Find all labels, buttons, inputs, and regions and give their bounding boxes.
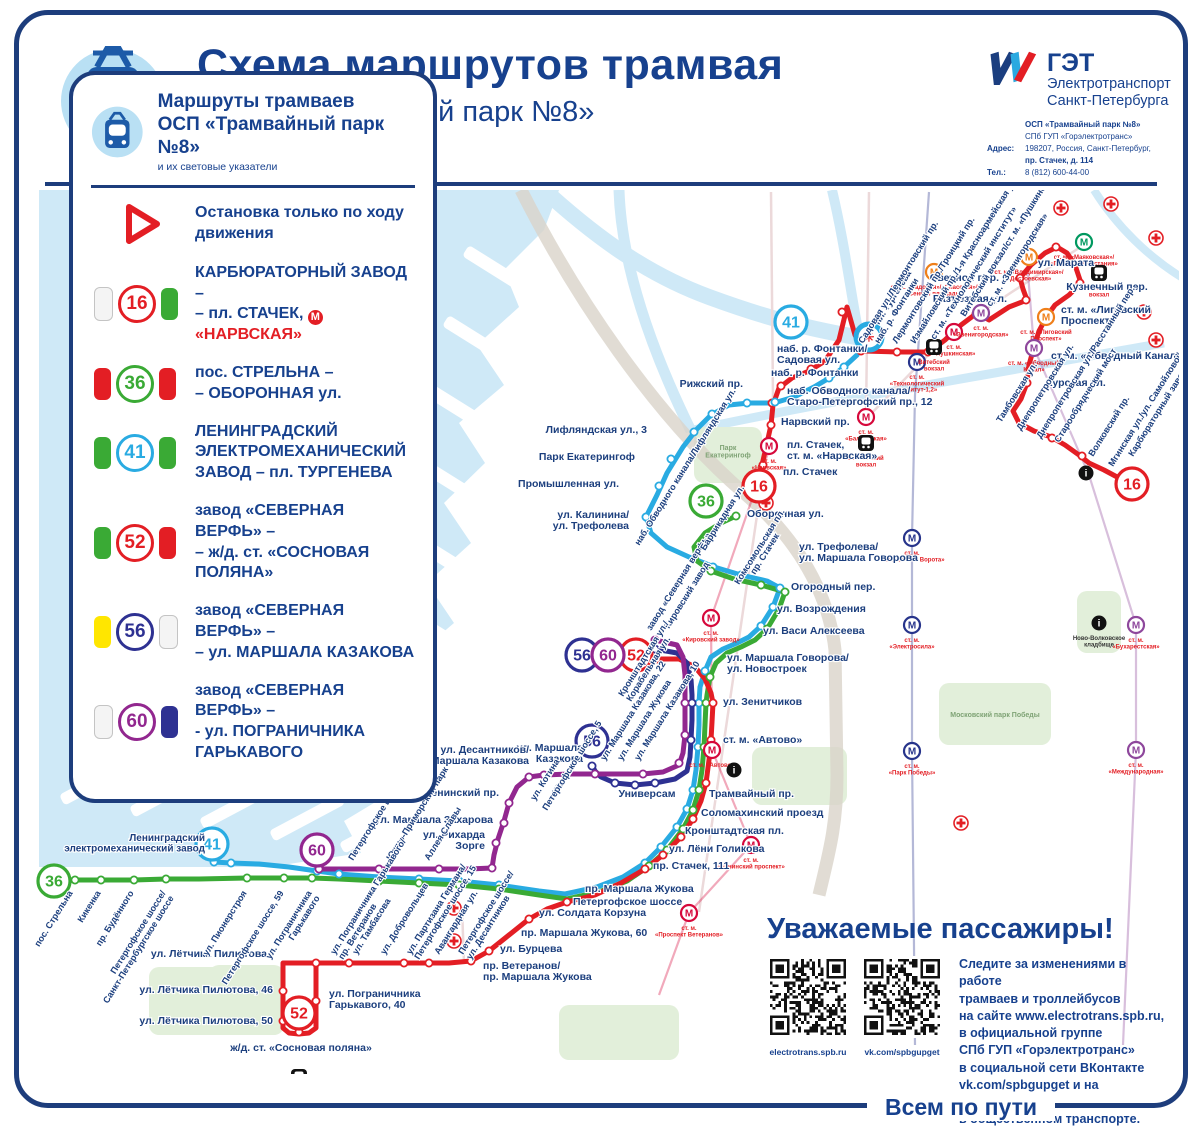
route-number-52: 52 (116, 524, 154, 562)
hospital-icon (1054, 201, 1068, 215)
map-label: ул. Калинина/ул. Трефолева (553, 509, 629, 532)
brand-line2: Санкт-Петербурга (1047, 93, 1171, 110)
svg-text:i: i (1085, 469, 1088, 480)
tram-stop (771, 398, 778, 405)
legend-item-route-60: 60 завод «СЕВЕРНАЯ ВЕРФЬ» –- ул. ПОГРАНИ… (91, 681, 415, 764)
tram-stop (71, 876, 78, 883)
svg-text:М: М (1132, 621, 1140, 632)
svg-text:М: М (765, 442, 773, 453)
qr-electrotrans: electrotrans.spb.ru (767, 956, 849, 1129)
map-label: наб. р. Фонтанки (771, 367, 859, 379)
contact-block: ОСП «Трамвайный парк №8» СПб ГУП «Горэле… (987, 119, 1177, 179)
map-label: ул. Возрождения (777, 603, 866, 615)
tram-stop (689, 806, 696, 813)
tram-stop (767, 421, 774, 428)
tram-stop (743, 399, 750, 406)
map-label: Нарвский пр. (781, 416, 850, 428)
metro-station-label: ст. м.«Парк Победы» (889, 764, 936, 776)
svg-text:36: 36 (45, 874, 63, 891)
tram-stop (681, 699, 688, 706)
route-number-41: 41 (116, 434, 154, 472)
tram-stop (588, 762, 595, 769)
map-label: Кикенка (75, 888, 103, 924)
svg-text:М: М (707, 614, 715, 625)
legend-item-route-16: 16 КАРБЮРАТОРНЫЙ ЗАВОД –– пл. СТАЧЕК, М«… (91, 263, 415, 346)
svg-text:16: 16 (1123, 477, 1141, 494)
contact-tel: 8 (812) 600-44-00 (1025, 167, 1177, 179)
legend-route-text: КАРБЮРАТОРНЫЙ ЗАВОД –– пл. СТАЧЕК, М«НАР… (195, 263, 415, 346)
get-logo-icon (987, 51, 1039, 85)
map-label: ул. ПограничникаГарькавого, 40 (329, 988, 421, 1011)
tram-stop (243, 874, 250, 881)
svg-text:56: 56 (573, 648, 591, 665)
stop-arrow-icon (123, 202, 163, 246)
legend-item-route-52: 52 завод «СЕВЕРНАЯ ВЕРФЬ» –– ж/д. ст. «С… (91, 501, 415, 584)
signal-light (159, 527, 176, 559)
metro-station-label: ст. м. «ЛиговскийПроспект» (1020, 329, 1072, 342)
slogan: Всем по пути (867, 1094, 1055, 1121)
svg-text:i: i (733, 766, 736, 777)
svg-text:М: М (908, 534, 916, 545)
map-label: пр. Ветеранов/пр. Маршала Жукова (483, 960, 592, 983)
route-number-36: 36 (116, 365, 154, 403)
svg-text:М: М (685, 909, 693, 920)
metro-station-icon: Мст. м.«Электросила» (889, 617, 935, 650)
rail-station-icon: ж.д. ст.«Сосновая поляна» (270, 1069, 329, 1074)
tram-stop (488, 864, 495, 871)
street (866, 192, 869, 415)
svg-text:М: М (862, 413, 870, 424)
map-label: пл. Стачек (783, 466, 838, 478)
svg-text:М: М (908, 747, 916, 758)
legend-note: и их световые указатели (158, 161, 415, 173)
signal-light (94, 527, 111, 559)
route-number-60: 60 (118, 703, 156, 741)
svg-text:36: 36 (697, 494, 715, 511)
metro-station-label: ст. м.«Кировский завод» (682, 631, 740, 643)
map-label: ул. Трефолева/ул. Маршала Говорова (799, 541, 918, 564)
tram-stop (97, 876, 104, 883)
tram-stop (525, 915, 532, 922)
legend-route-text: ЛЕНИНГРАДСКИЙЭЛЕКТРОМЕХАНИЧЕСКИЙЗАВОД – … (195, 422, 406, 484)
metro-station-icon: Мст. м.«Парк Победы» (889, 743, 936, 776)
hospital-icon (954, 816, 968, 830)
map-label: ул. Васи Алексеева (763, 625, 865, 637)
svg-text:52: 52 (290, 1006, 308, 1023)
svg-text:60: 60 (308, 843, 326, 860)
legend-box: Маршруты трамваев ОСП «Трамвайный парк №… (69, 71, 437, 803)
map-label: Рижский пр. (680, 378, 743, 390)
tram-stop (709, 699, 716, 706)
svg-text:М: М (708, 746, 716, 757)
legend-tram-icon (91, 104, 144, 160)
tram-stop (706, 673, 713, 680)
route-badge-52: 52 (283, 997, 315, 1029)
tram-stop (335, 870, 342, 877)
legend-divider (91, 185, 415, 188)
tram-stop (563, 898, 570, 905)
tram-stop (690, 428, 697, 435)
svg-text:М: М (1132, 746, 1140, 757)
qr2-label: vk.com/spbgupget (861, 1047, 943, 1057)
legend-route-text: завод «СЕВЕРНАЯ ВЕРФЬ» –– ж/д. ст. «СОСН… (195, 501, 415, 584)
tram-stop (308, 874, 315, 881)
svg-text:16: 16 (750, 479, 768, 496)
tram-stop (505, 799, 512, 806)
metro-station-label: ст. м.«Электросила» (889, 638, 935, 650)
tram-stop (777, 382, 784, 389)
brand-abbr: ГЭТ (1047, 51, 1171, 76)
svg-text:М: М (1030, 344, 1038, 355)
brand-block: ГЭТ Электротранспорт Санкт-Петербурга ОС… (987, 51, 1177, 179)
tram-stop (655, 482, 662, 489)
legend-title1: Маршруты трамваев (158, 91, 415, 114)
tram-stop (667, 455, 674, 462)
svg-text:41: 41 (782, 315, 800, 332)
map-label: Карбюраторный завод (1126, 366, 1179, 458)
passengers-title: Уважаемые пассажиры! (767, 913, 1169, 946)
tram-stop (500, 819, 507, 826)
contact-tel-label: Тел.: (987, 167, 1021, 179)
tram-stop (435, 865, 442, 872)
signal-light (159, 615, 178, 649)
tram-stop (611, 779, 618, 786)
signal-light (161, 288, 178, 320)
metro-station-icon: Мст. м.«Проспект Ветеранов» (655, 905, 724, 938)
map-label: ул. Лёни Голикова (669, 843, 765, 855)
park-label: Московский парк Победы (950, 711, 1039, 719)
tram-stop (641, 865, 648, 872)
map-label: Парк Екатерингоф (539, 451, 635, 463)
metro-station-label: ст. м.«Проспект Ветеранов» (655, 926, 724, 938)
route-badge-60: 60 (301, 834, 333, 866)
signal-light (159, 437, 176, 469)
contact-addr-label: Адрес: (987, 143, 1021, 167)
tram-stop (279, 987, 286, 994)
tram-stop (732, 512, 739, 519)
contact-org1: ОСП «Трамвайный парк №8» (1025, 120, 1140, 129)
tram-stop (130, 876, 137, 883)
qr-code-icon (861, 956, 943, 1038)
tram-stop (227, 859, 234, 866)
brand-line1: Электротранспорт (1047, 76, 1171, 93)
map-label: Соломахинский проезд (701, 807, 824, 819)
tram-stop (639, 770, 646, 777)
tram-stop (675, 759, 682, 766)
svg-text:М: М (1042, 313, 1050, 324)
tram-stop (1078, 452, 1085, 459)
legend-route-text: завод «СЕВЕРНАЯ ВЕРФЬ» –– ул. МАРШАЛА КА… (195, 601, 415, 663)
metro-station-icon: Мст. м.«Кировский завод» (682, 610, 740, 643)
tram-stop (651, 779, 658, 786)
tram-stop (695, 786, 702, 793)
tram-stop (525, 773, 532, 780)
svg-text:М: М (908, 621, 916, 632)
info-poi-icon: i (1079, 466, 1094, 481)
legend-route-text: завод «СЕВЕРНАЯ ВЕРФЬ» –- ул. ПОГРАНИЧНИ… (195, 681, 415, 764)
svg-text:41: 41 (203, 837, 221, 854)
map-label: Огородный пер. (791, 581, 875, 593)
contact-org2: СПб ГУП «Горэлектротранс» (987, 131, 1177, 143)
legend-item-route-56: 56 завод «СЕВЕРНАЯ ВЕРФЬ» –– ул. МАРШАЛА… (91, 601, 415, 663)
tram-stop (769, 603, 776, 610)
contact-addr: 198207, Россия, Санкт-Петербург,пр. Стач… (1025, 143, 1177, 167)
svg-text:М: М (977, 309, 985, 320)
tram-stop (312, 959, 319, 966)
signal-light (94, 437, 111, 469)
map-label: Промышленная ул. (518, 478, 619, 490)
poster: Схема маршрутов трамвая ОСП «Трамвайный … (14, 10, 1188, 1108)
tram-stop (485, 947, 492, 954)
map-label: ул. Маршала Захарова (375, 814, 494, 826)
map-label: пр. Маршала Жукова, 60 (521, 927, 647, 939)
legend-title2: ОСП «Трамвайный парк №8» (158, 114, 415, 160)
tram-stop (1052, 243, 1059, 250)
signal-light (94, 616, 111, 648)
signal-light (94, 368, 111, 400)
signal-light (94, 705, 113, 739)
legend-item-stop-direction: Остановка только по ходудвижения (91, 202, 415, 246)
map-label: ул. Солдата Корзуна (539, 907, 646, 919)
map-label: наб. р. Фонтанки/Садовая ул. (777, 343, 868, 366)
tram-stop (345, 959, 352, 966)
metro-icon: М (308, 310, 323, 325)
svg-text:i: i (1098, 619, 1101, 630)
route-badge-41: 41 (775, 306, 807, 338)
info-poi-icon: i (727, 763, 742, 778)
legend-item-route-36: 36 пос. СТРЕЛЬНА –– ОБОРОННАЯ ул. (91, 363, 415, 405)
route-badge-60: 60 (592, 639, 624, 671)
tram-stop (677, 833, 684, 840)
tram-stop (162, 875, 169, 882)
rail-station-label: Витебскийвокзал (918, 359, 950, 372)
legend-route-text: пос. СТРЕЛЬНА –– ОБОРОННАЯ ул. (195, 363, 342, 405)
tram-stop (492, 839, 499, 846)
map-label: пр. Стачек, 111 (653, 860, 729, 872)
route-badge-16: 16 (743, 470, 775, 502)
map-label: ул. Лётчика Пилютова, 50 (139, 1015, 273, 1027)
hospital-icon (1149, 333, 1163, 347)
route-number-16: 16 (118, 285, 156, 323)
tram-stop (689, 815, 696, 822)
map-label: Кронштадтская пл. (685, 825, 784, 837)
svg-text:60: 60 (599, 648, 617, 665)
map-label: ж/д. ст. «Сосновая поляна» (229, 1042, 372, 1054)
map-label: ул. Лётчика Пилютова, 46 (139, 984, 273, 996)
hospital-icon (1104, 197, 1118, 211)
tram-stop (681, 731, 688, 738)
tram-stop (838, 308, 845, 315)
tram-stop (1022, 296, 1029, 303)
metro-station-label: ст. м.«Международная» (1109, 763, 1165, 775)
tram-stop (781, 588, 788, 595)
tram-stop (702, 779, 709, 786)
map-label: ул. Бурцева (500, 943, 562, 955)
signal-light (159, 368, 176, 400)
tram-stop (425, 959, 432, 966)
map-label: ул. Марата (1038, 257, 1094, 269)
map-label: Трамвайный пр. (709, 788, 794, 800)
svg-text:М: М (1080, 238, 1088, 249)
legend-stop-direction-text: Остановка только по ходудвижения (195, 203, 404, 245)
metro-station-icon: Мст. м.«Международная» (1109, 742, 1165, 775)
qr1-label: electrotrans.spb.ru (767, 1047, 849, 1057)
hospital-icon (1149, 231, 1163, 245)
route-badge-16: 16 (1116, 468, 1148, 500)
tram-stop (757, 581, 764, 588)
legend-item-route-41: 41 ЛЕНИНГРАДСКИЙЭЛЕКТРОМЕХАНИЧЕСКИЙЗАВОД… (91, 422, 415, 484)
tram-stop (280, 874, 287, 881)
tram-stop (400, 959, 407, 966)
tram-stop (591, 770, 598, 777)
signal-light (94, 287, 113, 321)
signal-light (161, 706, 178, 738)
qr-code-icon (767, 956, 849, 1038)
map-label: Лифляндская ул., 3 (546, 424, 648, 436)
route-badge-36: 36 (690, 485, 722, 517)
map-label: пр. Маршала Жукова (585, 883, 694, 895)
route-number-56: 56 (116, 613, 154, 651)
map-label: ул. Зенитчиков (723, 696, 803, 708)
park (559, 1005, 679, 1060)
tram-stop (659, 851, 666, 858)
map-label: ст. м. «Автово» (723, 734, 802, 746)
tram-stop (893, 348, 900, 355)
map-label: Универсам (618, 788, 675, 800)
